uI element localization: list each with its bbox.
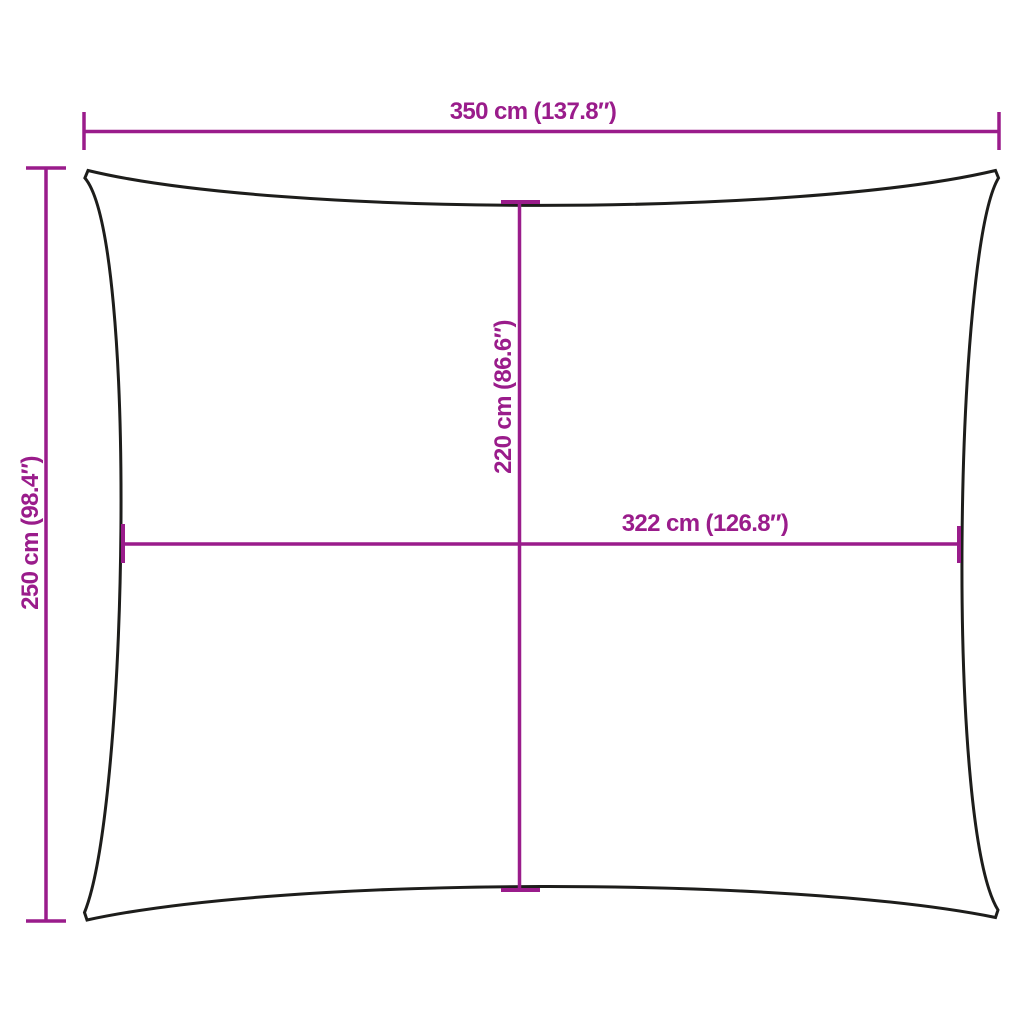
svg-text:350 cm (137.8″): 350 cm (137.8″) [450,98,617,125]
svg-text:220 cm (86.6″): 220 cm (86.6″) [490,320,517,474]
svg-text:250 cm (98.4″): 250 cm (98.4″) [17,456,44,610]
svg-text:322 cm (126.8″): 322 cm (126.8″) [622,510,789,537]
